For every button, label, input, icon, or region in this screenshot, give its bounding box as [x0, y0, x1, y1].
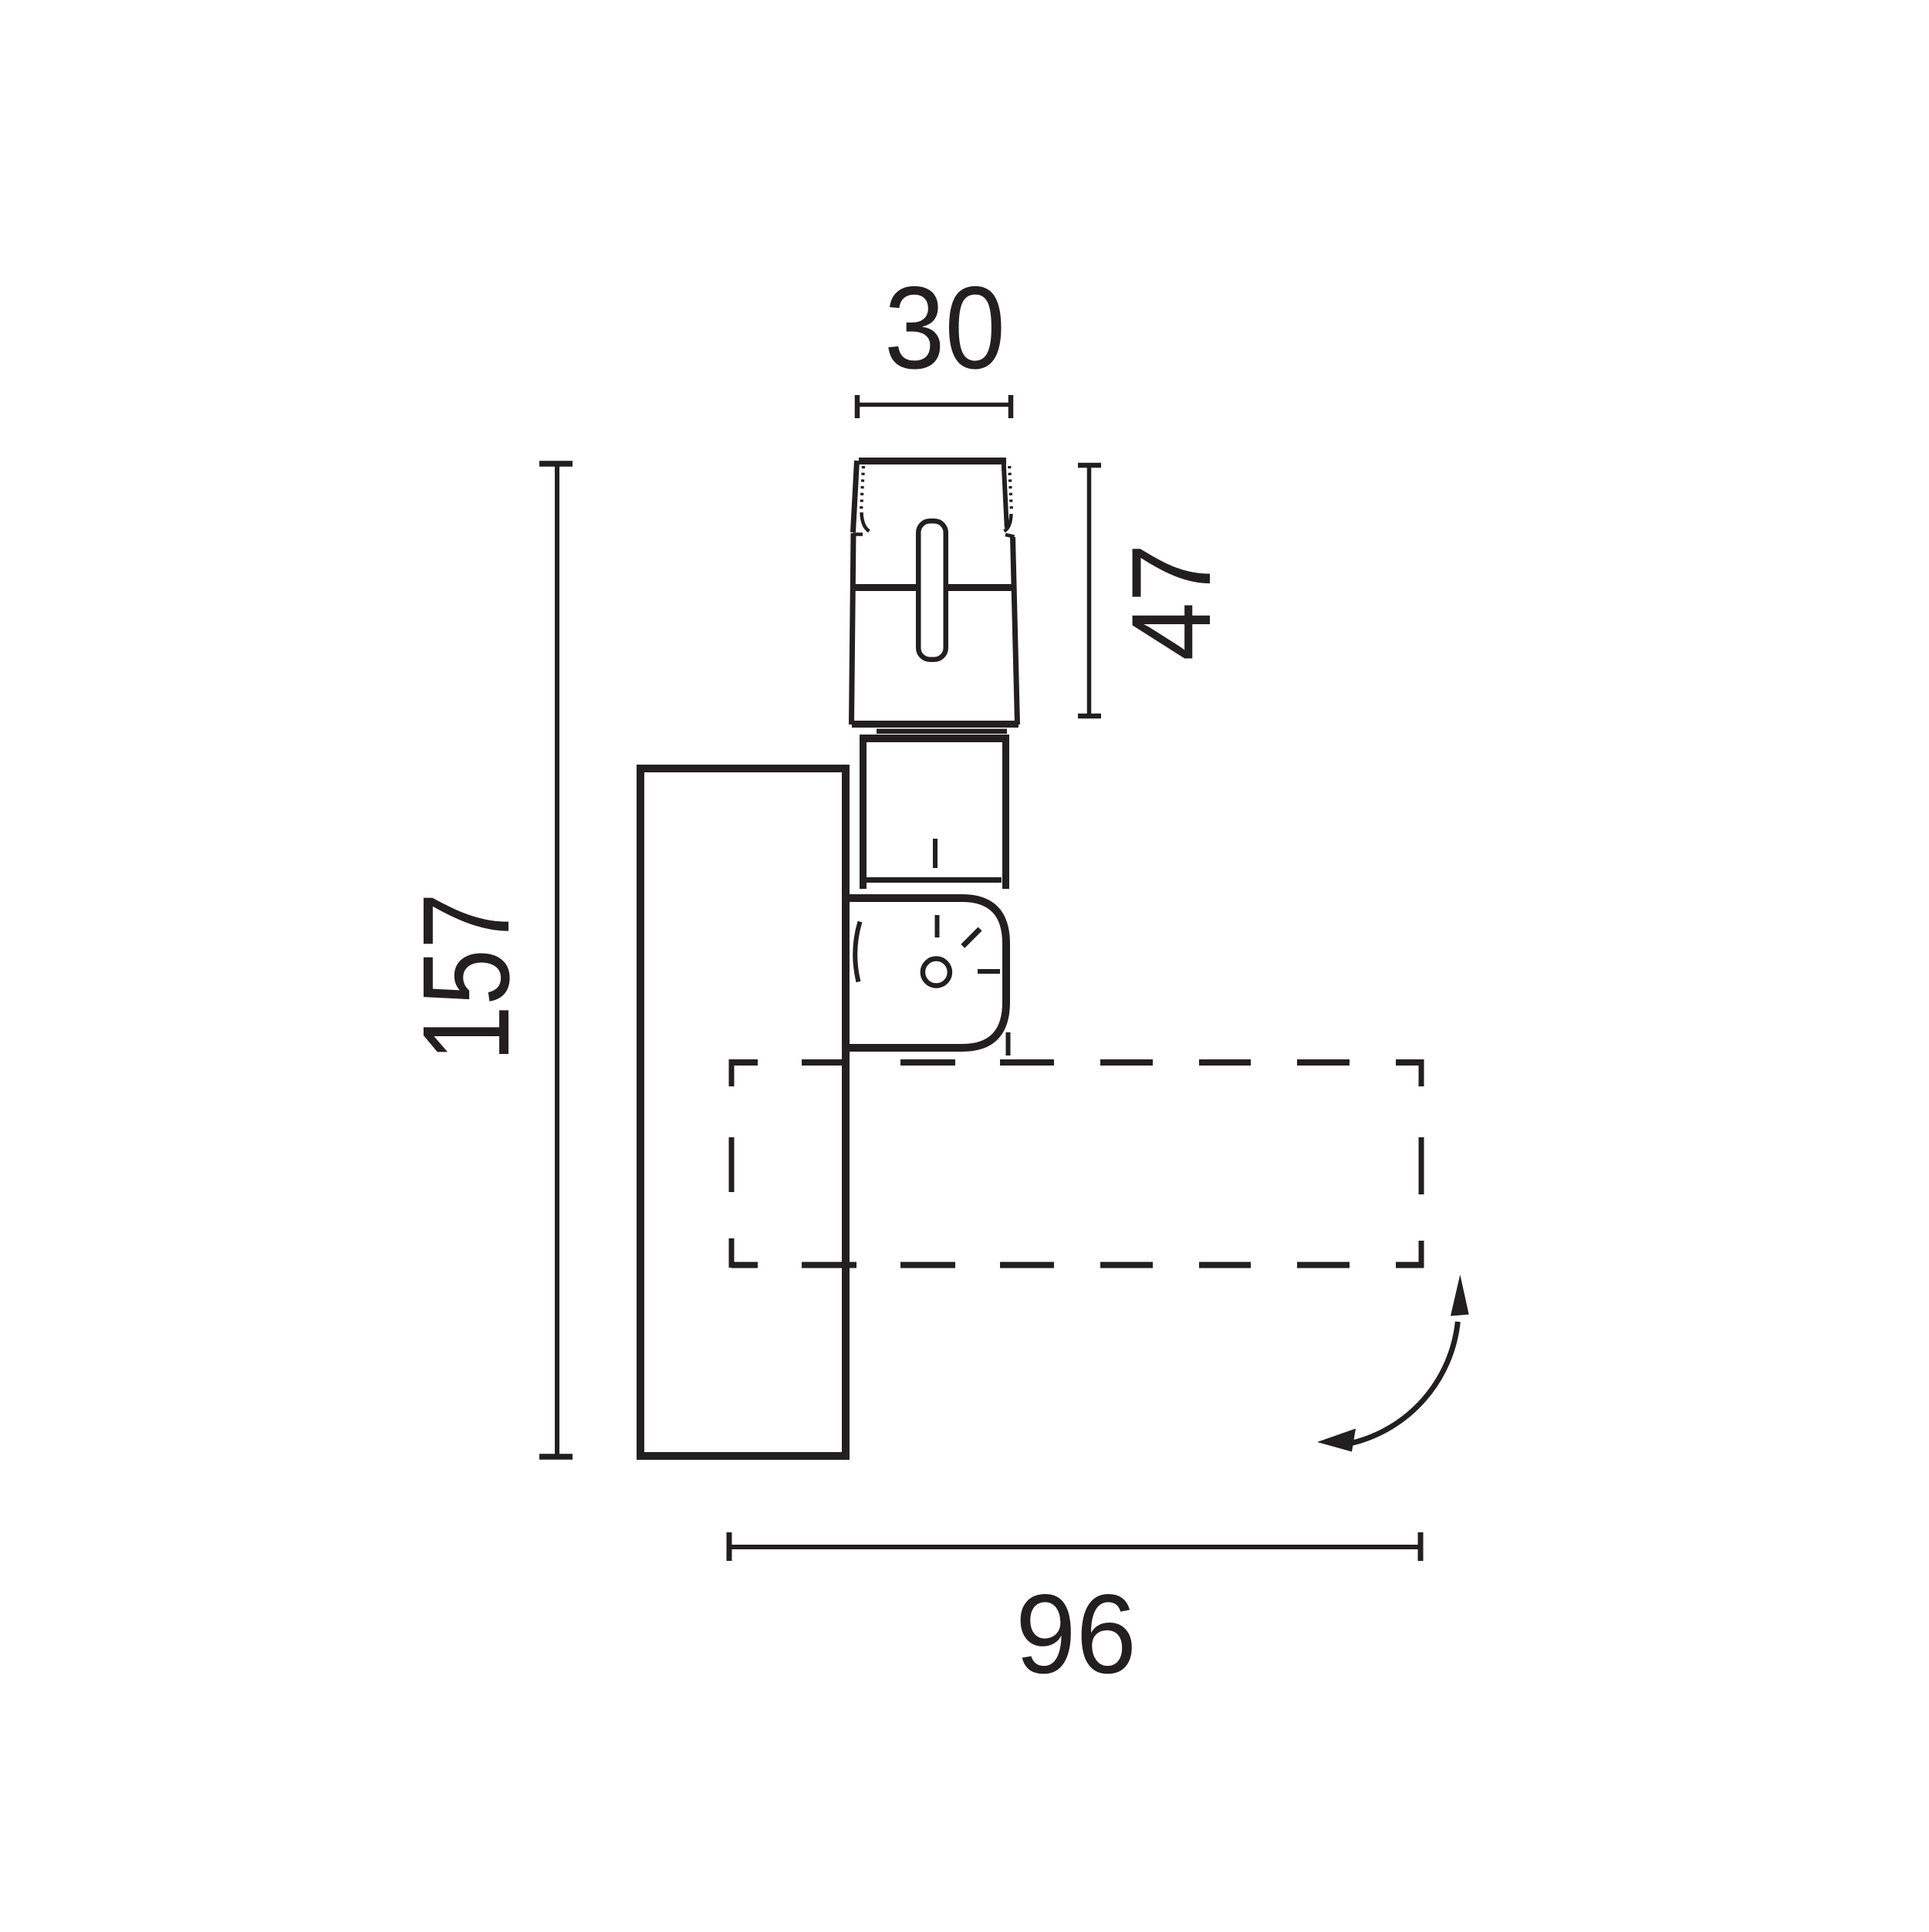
svg-text:96: 96: [1015, 1571, 1137, 1697]
svg-text:47: 47: [1108, 544, 1234, 661]
svg-text:157: 157: [397, 893, 535, 1062]
svg-text:30: 30: [884, 262, 1005, 393]
